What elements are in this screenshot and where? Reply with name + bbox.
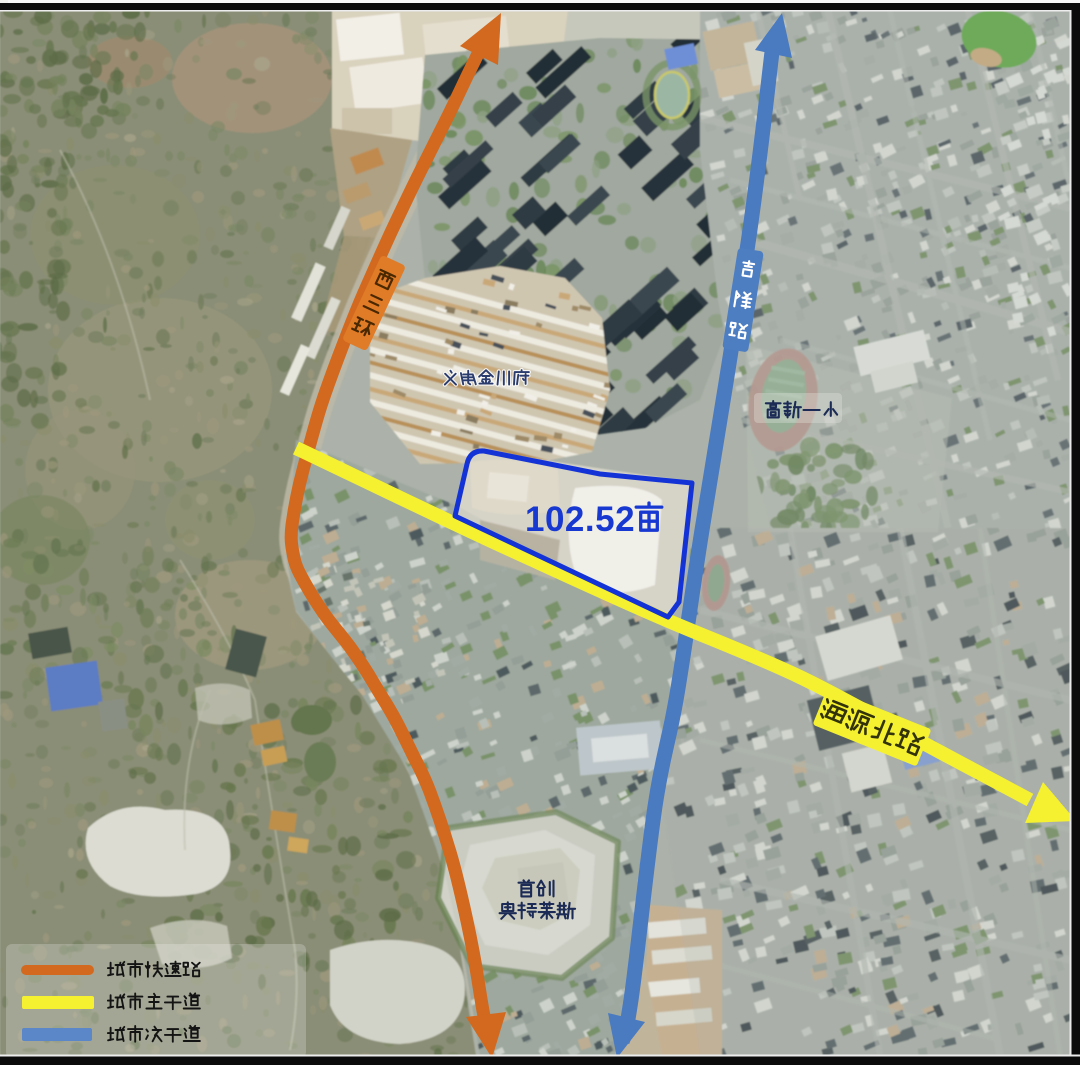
svg-text:102.52: 102.52 <box>525 500 635 539</box>
